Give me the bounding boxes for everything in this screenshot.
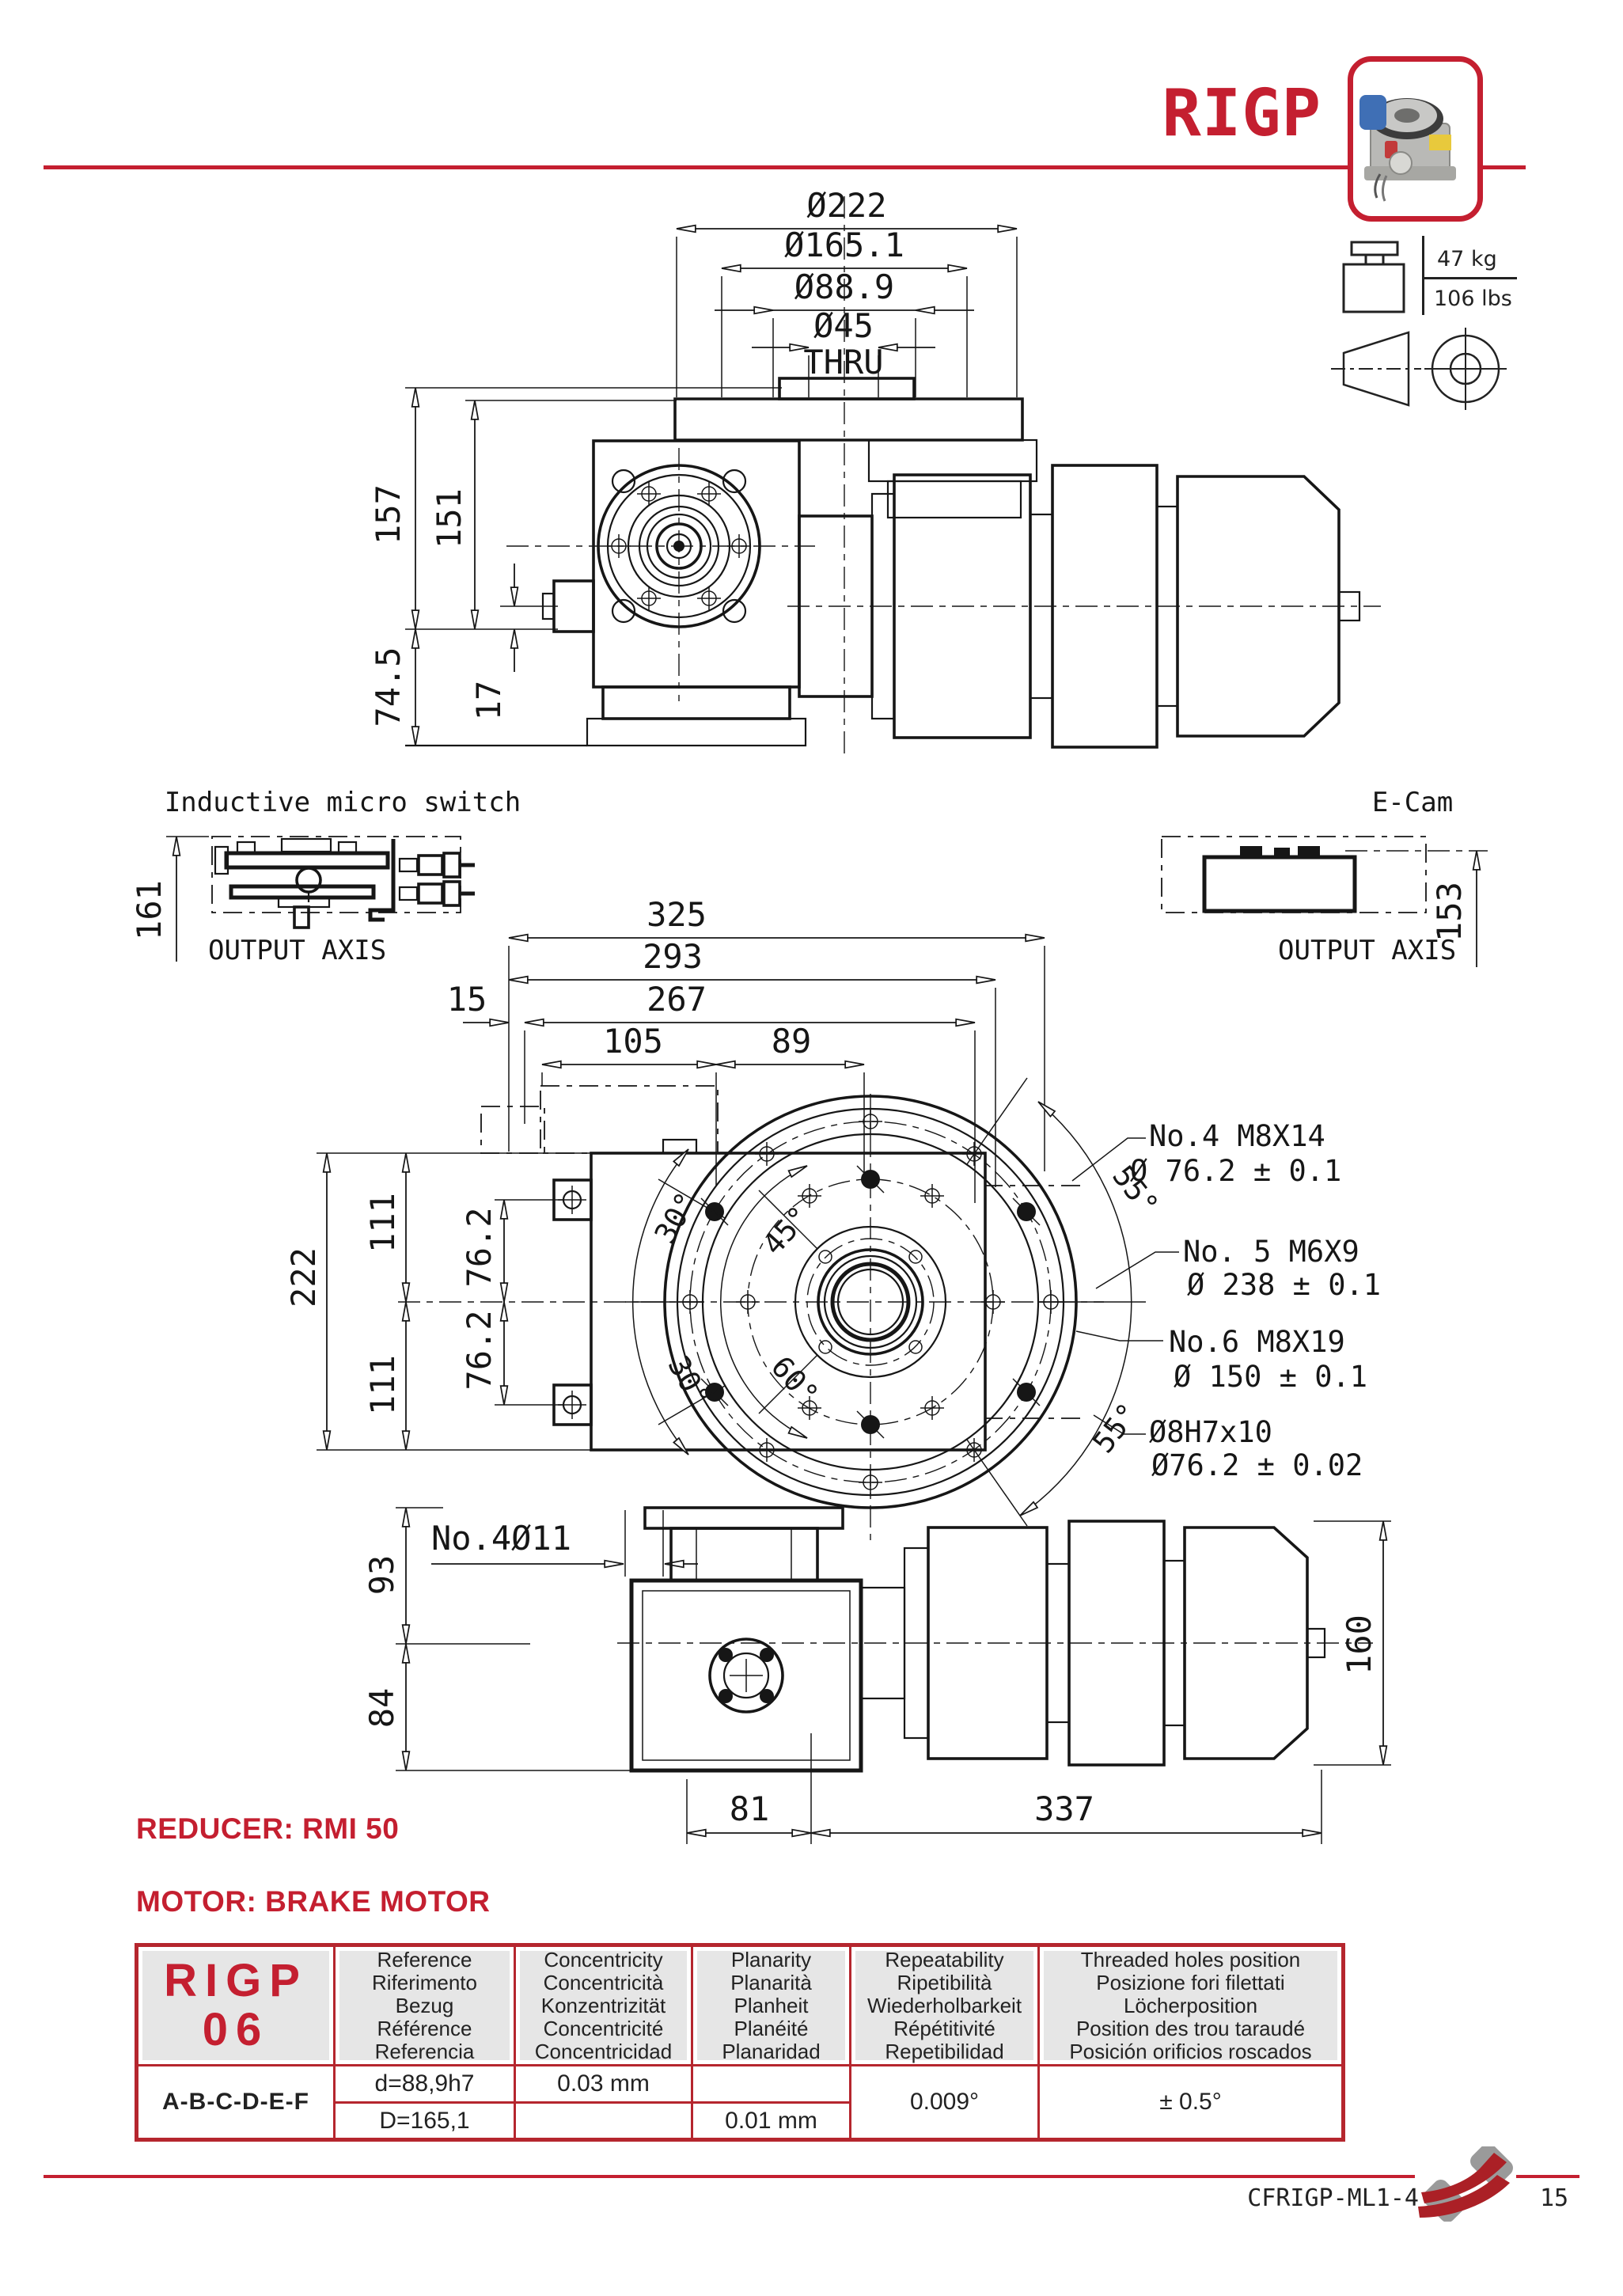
dim-161: 161 — [130, 880, 169, 940]
hdr-line: Référence — [336, 2017, 514, 2040]
dim-325: 325 — [647, 895, 707, 934]
hdr-line: Planarità — [693, 1972, 849, 1994]
dim-d889: Ø88.9 — [794, 268, 894, 306]
dim-81: 81 — [730, 1789, 770, 1828]
header-reference: Reference Riferimento Bezug Référence Re… — [335, 1945, 515, 2066]
header-rule — [44, 165, 1526, 169]
cell-ref-d: d=88,9h7 — [335, 2066, 515, 2103]
dim-thru: THRU — [803, 343, 883, 381]
hdr-line: Posición orificios roscados — [1040, 2040, 1341, 2063]
dim-111-bottom: 111 — [363, 1355, 402, 1415]
dim-d165: Ø165.1 — [784, 226, 904, 264]
dim-151: 151 — [430, 488, 468, 548]
hdr-line: Posizione fori filettati — [1040, 1972, 1341, 1994]
hdr-line: Planaridad — [693, 2040, 849, 2063]
dim-d222: Ø222 — [806, 186, 886, 225]
callout-8h7-dia: Ø76.2 ± 0.02 — [1151, 1448, 1363, 1482]
micro-switch-title: Inductive micro switch — [165, 787, 521, 818]
hdr-line: Position des trou taraudé — [1040, 2017, 1341, 2040]
header-concentricity: Concentricity Concentricità Konzentrizit… — [515, 1945, 692, 2066]
page-title: RIGP — [1162, 76, 1322, 151]
cell-planarity-empty — [692, 2066, 851, 2103]
hdr-line: Planéité — [693, 2017, 849, 2040]
weight-kg: 47 kg — [1437, 247, 1497, 271]
dim-d45: Ø45 — [813, 306, 874, 345]
header-threaded-holes: Threaded holes position Posizione fori f… — [1039, 1945, 1344, 2066]
header-repeatability: Repeatability Ripetibilità Wiederholbark… — [851, 1945, 1039, 2066]
hdr-line: Repetibilidad — [851, 2040, 1037, 2063]
bottom-side-view: 160 81 337 — [617, 1508, 1391, 1844]
callout-no6-m8x19: No.6 M8X19 — [1169, 1325, 1345, 1359]
hdr-line: Löcherposition — [1040, 1994, 1341, 2017]
footer-rule-right — [1516, 2175, 1579, 2178]
callouts: No.4 M8X14 Ø 76.2 ± 0.1 No. 5 M6X9 Ø 238… — [1072, 1119, 1381, 1482]
dim-293: 293 — [643, 937, 703, 976]
weight-divider — [1422, 236, 1424, 315]
callout-no5-dia: Ø 238 ± 0.1 — [1187, 1268, 1381, 1302]
micro-switch-detail: Inductive micro switch 161 OUTPUT AXIS — [130, 787, 521, 966]
angle-55-top: 55° — [1105, 1159, 1165, 1222]
spec-table: RIGP 06 Reference Riferimento Bezug Réfé… — [135, 1943, 1345, 2142]
cell-ref-D: D=165,1 — [335, 2103, 515, 2140]
callout-no6-dia: Ø 150 ± 0.1 — [1174, 1360, 1367, 1394]
front-view-drawing: 30° 30° 45° 60° 55° 55° — [398, 1078, 1165, 1542]
hdr-line: Referencia — [336, 2040, 514, 2063]
dim-267: 267 — [647, 980, 707, 1019]
micro-switch-axis-label: OUTPUT AXIS — [208, 935, 386, 966]
dim-153: 153 — [1430, 882, 1469, 942]
cell-repeatability-value: 0.009° — [851, 2066, 1039, 2140]
callout-no4-dia: Ø 76.2 ± 0.1 — [1130, 1154, 1341, 1188]
front-view-dims-top: 325 293 267 15 105 89 — [447, 895, 1045, 1203]
cell-concentricity-value: 0.03 mm — [515, 2066, 692, 2103]
dim-105: 105 — [603, 1022, 663, 1061]
weight-lbs: 106 lbs — [1434, 287, 1512, 311]
dim-15: 15 — [447, 980, 487, 1019]
ecam-detail: E-Cam 153 OUTPUT AXIS — [1162, 787, 1488, 967]
model-name: RIGP — [138, 1956, 333, 2006]
hdr-line: Planarity — [693, 1949, 849, 1972]
hdr-line: Planheit — [693, 1994, 849, 2017]
callout-8h7: Ø8H7x10 — [1149, 1415, 1272, 1449]
dim-337: 337 — [1034, 1789, 1094, 1828]
model-size: 06 — [138, 2006, 333, 2055]
angle-55-bottom: 55° — [1086, 1397, 1146, 1459]
dim-89: 89 — [772, 1022, 812, 1061]
product-photo-icon — [1353, 62, 1466, 205]
hdr-line: Threaded holes position — [1040, 1949, 1341, 1972]
hdr-line: Riferimento — [336, 1972, 514, 1994]
hdr-line: Wiederholbarkeit — [851, 1994, 1037, 2017]
hdr-line: Concentricity — [516, 1949, 691, 1972]
cell-threaded-value: ± 0.5° — [1039, 2066, 1344, 2140]
ecam-title: E-Cam — [1372, 787, 1453, 818]
angle-45: 45° — [756, 1199, 817, 1261]
hdr-line: Concentricità — [516, 1972, 691, 1994]
dim-84: 84 — [362, 1688, 401, 1729]
cell-planarity-value: 0.01 mm — [692, 2103, 851, 2140]
hdr-line: Concentricité — [516, 2017, 691, 2040]
dim-111-top: 111 — [363, 1193, 402, 1253]
product-photo-frame — [1348, 56, 1483, 222]
model-cell: RIGP 06 — [137, 1945, 335, 2066]
cell-concentricity-empty — [515, 2103, 692, 2140]
angle-30-bottom: 30° — [661, 1350, 717, 1413]
angle-30-top: 30° — [648, 1186, 704, 1249]
header-planarity: Planarity Planarità Planheit Planéité Pl… — [692, 1945, 851, 2066]
hdr-line: Reference — [336, 1949, 514, 1972]
weight-icon — [1337, 237, 1413, 317]
reducer-note: REDUCER: RMI 50 — [136, 1812, 399, 1846]
weight-rule — [1422, 277, 1517, 279]
dim-160: 160 — [1340, 1615, 1378, 1675]
dim-157: 157 — [369, 484, 408, 545]
company-logo-icon — [1416, 2146, 1519, 2222]
document-code: CFRIGP-ML1-4 — [1247, 2184, 1419, 2212]
dim-no4d11: No.4Ø11 — [431, 1519, 571, 1558]
hdr-line: Bezug — [336, 1994, 514, 2017]
front-view-dims-left: 222 111 111 76.2 76.2 93 84 No.4Ø11 — [284, 1153, 698, 1770]
hdr-line: Concentricidad — [516, 2040, 691, 2063]
datasheet-page: RIGP 47 kg 106 lbs — [0, 0, 1623, 2296]
hdr-line: Konzentrizität — [516, 1994, 691, 2017]
dim-222: 222 — [284, 1247, 323, 1307]
callout-no5-m6x9: No. 5 M6X9 — [1183, 1235, 1359, 1269]
hdr-line: Repeatability — [851, 1949, 1037, 1972]
hdr-line: Ripetibilità — [851, 1972, 1037, 1994]
callout-no4-m8x14: No.4 M8X14 — [1149, 1119, 1325, 1153]
ecam-axis-label: OUTPUT AXIS — [1278, 935, 1456, 966]
footer-rule-left — [44, 2175, 1415, 2178]
dim-762-bottom: 76.2 — [460, 1310, 499, 1390]
hdr-line: Répétitivité — [851, 2017, 1037, 2040]
top-view-drawing: Ø222 Ø165.1 Ø88.9 Ø45 THRU — [369, 186, 1381, 753]
angle-60: 60° — [764, 1349, 825, 1411]
dim-762-top: 76.2 — [460, 1207, 499, 1287]
projection-symbol-icon — [1329, 323, 1511, 418]
motor-note: MOTOR: BRAKE MOTOR — [136, 1885, 491, 1918]
dim-93: 93 — [362, 1555, 401, 1596]
dim-17: 17 — [469, 681, 508, 721]
dim-745: 74.5 — [369, 647, 408, 727]
row-label-cell: A-B-C-D-E-F — [137, 2066, 335, 2140]
page-number: 15 — [1540, 2184, 1568, 2212]
